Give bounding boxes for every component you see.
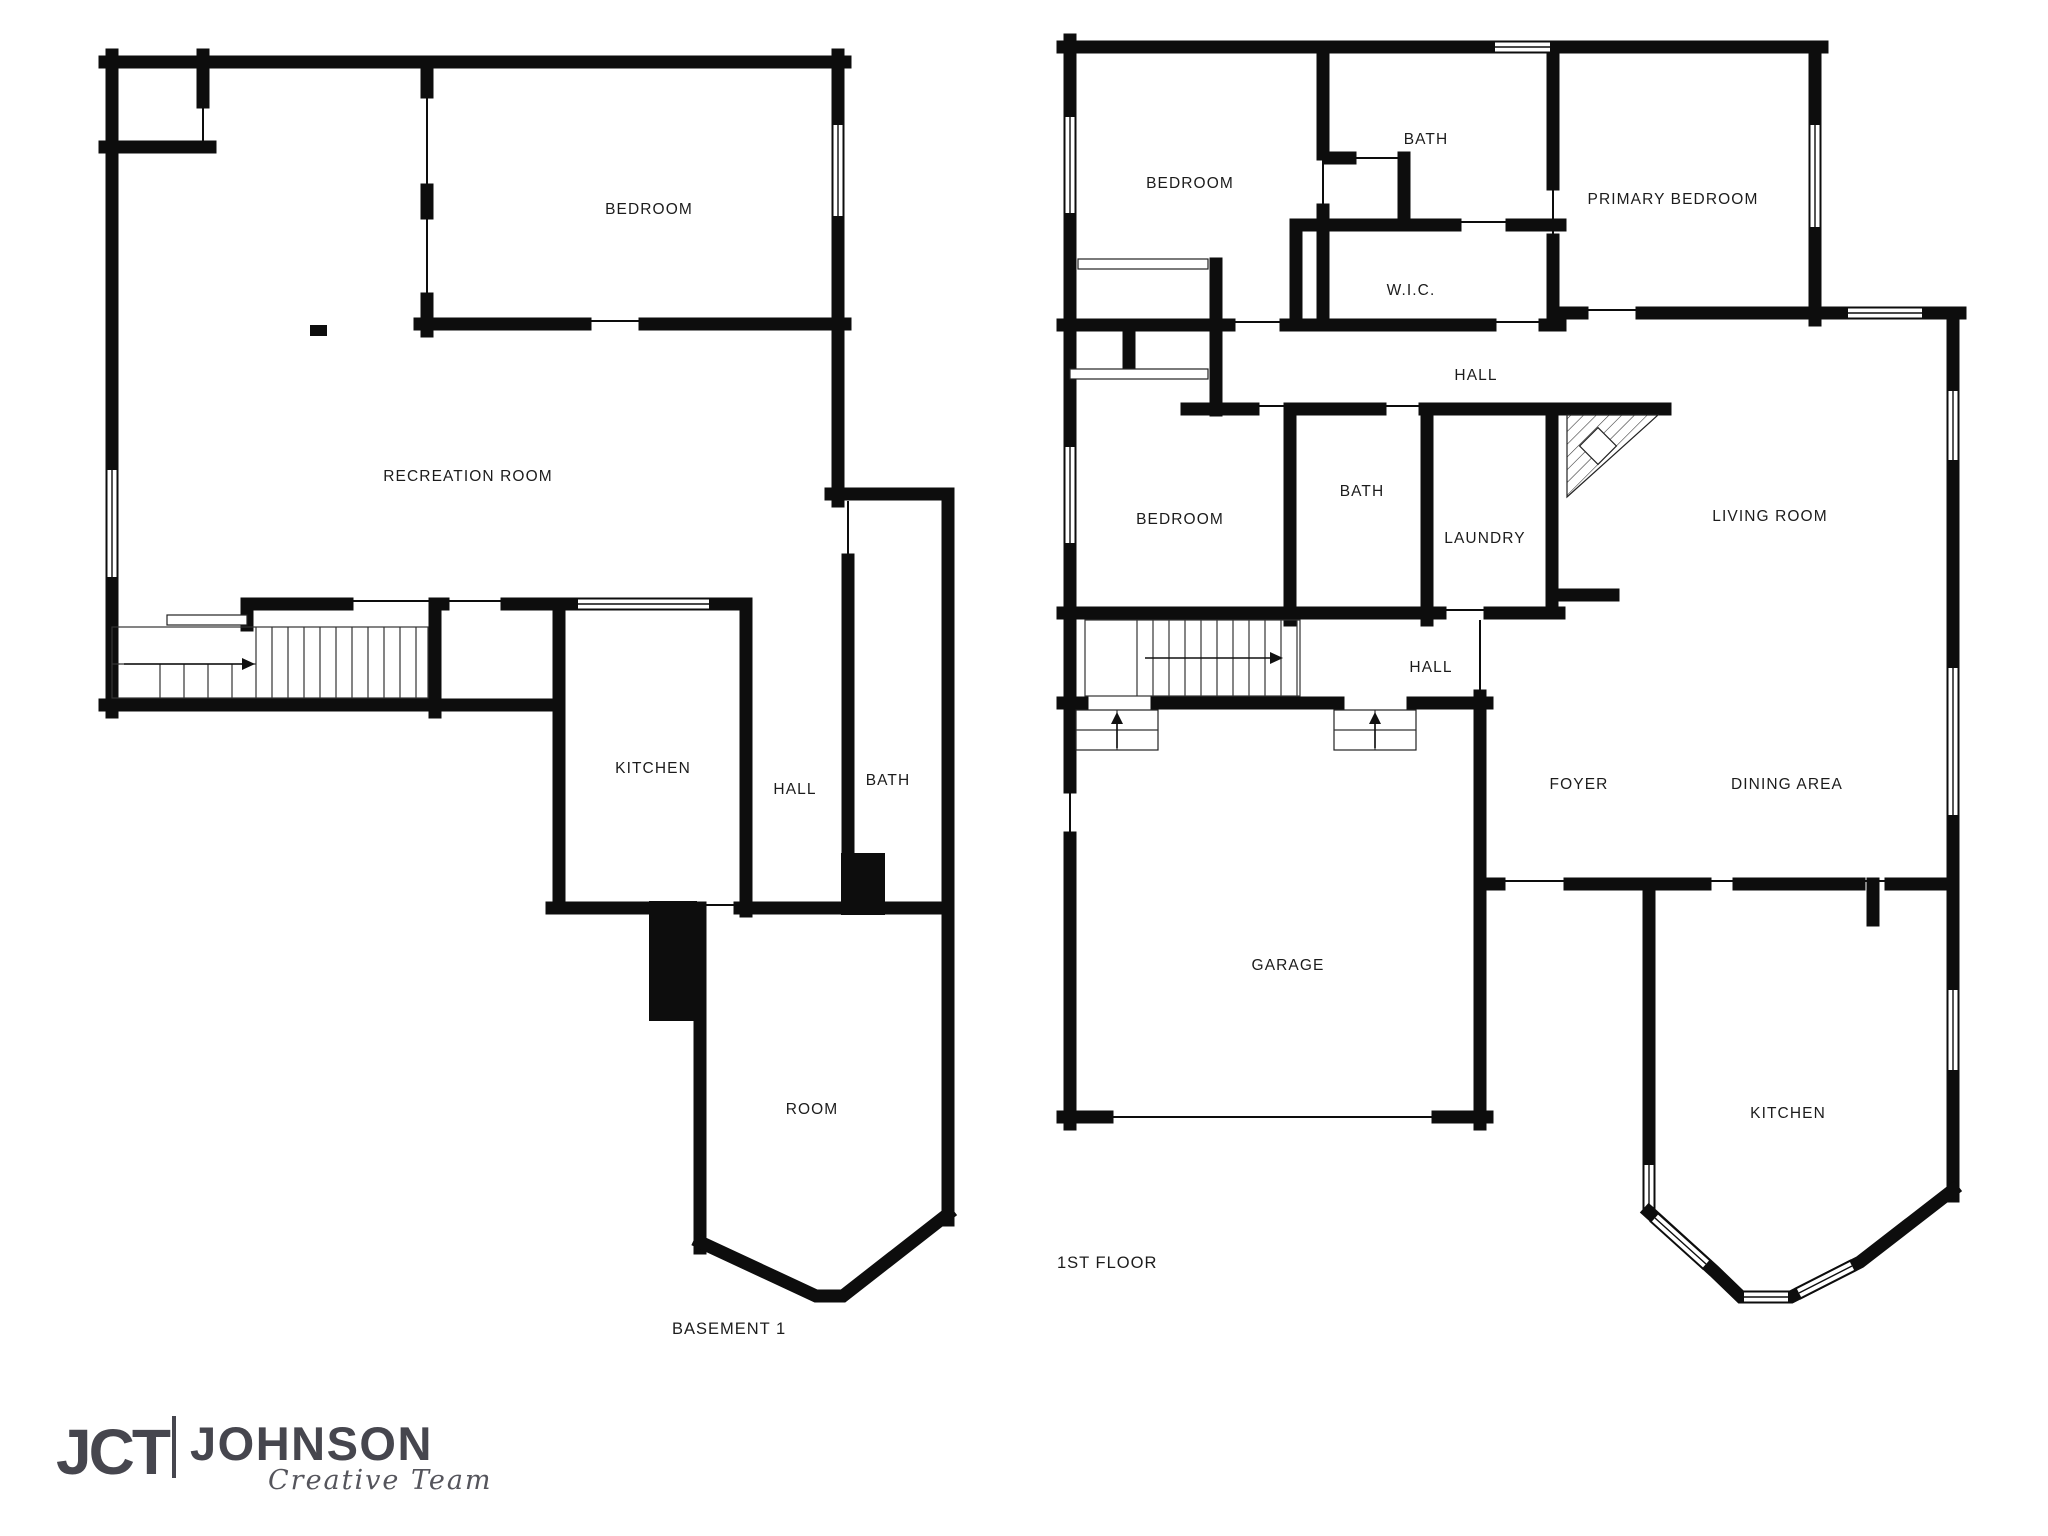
room-label: HALL xyxy=(1454,367,1497,384)
room-label: HALL xyxy=(1409,659,1452,676)
bay-wall xyxy=(700,1214,948,1296)
room-label: ROOM xyxy=(786,1101,839,1118)
room-label: KITCHEN xyxy=(615,760,691,777)
room-label: LIVING ROOM xyxy=(1712,508,1827,525)
window-glass-line xyxy=(1799,1266,1852,1293)
logo-mark: JCT xyxy=(56,1416,171,1488)
bay-wall xyxy=(1649,1190,1953,1297)
closet-sliding-door xyxy=(1070,369,1208,379)
room-label: LAUNDRY xyxy=(1444,530,1526,547)
stair-landing-edge xyxy=(167,615,247,625)
room-label: BEDROOM xyxy=(1146,175,1234,192)
floor-caption-basement: BASEMENT 1 xyxy=(672,1320,786,1338)
wall-block xyxy=(310,325,327,336)
logo: JCT JOHNSON Creative Team xyxy=(56,1416,493,1496)
room-label: BATH xyxy=(1340,483,1385,500)
logo-tagline: Creative Team xyxy=(268,1465,493,1496)
wall-block xyxy=(649,901,697,1021)
room-label: W.I.C. xyxy=(1387,282,1436,299)
floor-caption-first-floor: 1ST FLOOR xyxy=(1057,1254,1157,1272)
floor-plan-page: BASEMENT 1 BEDROOMRECREATION ROOMKITCHEN… xyxy=(0,0,2048,1536)
first-floor-plan: 1ST FLOOR BEDROOMBATHPRIMARY BEDROOMW.I.… xyxy=(1057,40,1960,1297)
room-label: BATH xyxy=(866,772,911,789)
basement-floor-plan: BASEMENT 1 BEDROOMRECREATION ROOMKITCHEN… xyxy=(105,55,948,1338)
room-label: BEDROOM xyxy=(605,201,693,218)
room-label: DINING AREA xyxy=(1731,776,1843,793)
arrow-head-icon xyxy=(242,658,255,670)
room-label: KITCHEN xyxy=(1750,1105,1826,1122)
window-glass-line xyxy=(1655,1218,1706,1264)
room-label: FOYER xyxy=(1550,776,1609,793)
wall-block xyxy=(841,853,885,915)
floor-plan-image: BASEMENT 1 BEDROOMRECREATION ROOMKITCHEN… xyxy=(0,0,2048,1536)
logo-separator xyxy=(172,1416,176,1478)
room-label: PRIMARY BEDROOM xyxy=(1588,191,1759,208)
room-label: HALL xyxy=(773,781,816,798)
closet-sliding-door xyxy=(1078,259,1208,269)
room-label: RECREATION ROOM xyxy=(383,468,553,485)
room-label: GARAGE xyxy=(1252,957,1325,974)
room-label: BATH xyxy=(1404,131,1449,148)
open-to-below-hatch xyxy=(1567,415,1658,497)
room-label: BEDROOM xyxy=(1136,511,1224,528)
logo-name: JOHNSON xyxy=(190,1417,433,1470)
